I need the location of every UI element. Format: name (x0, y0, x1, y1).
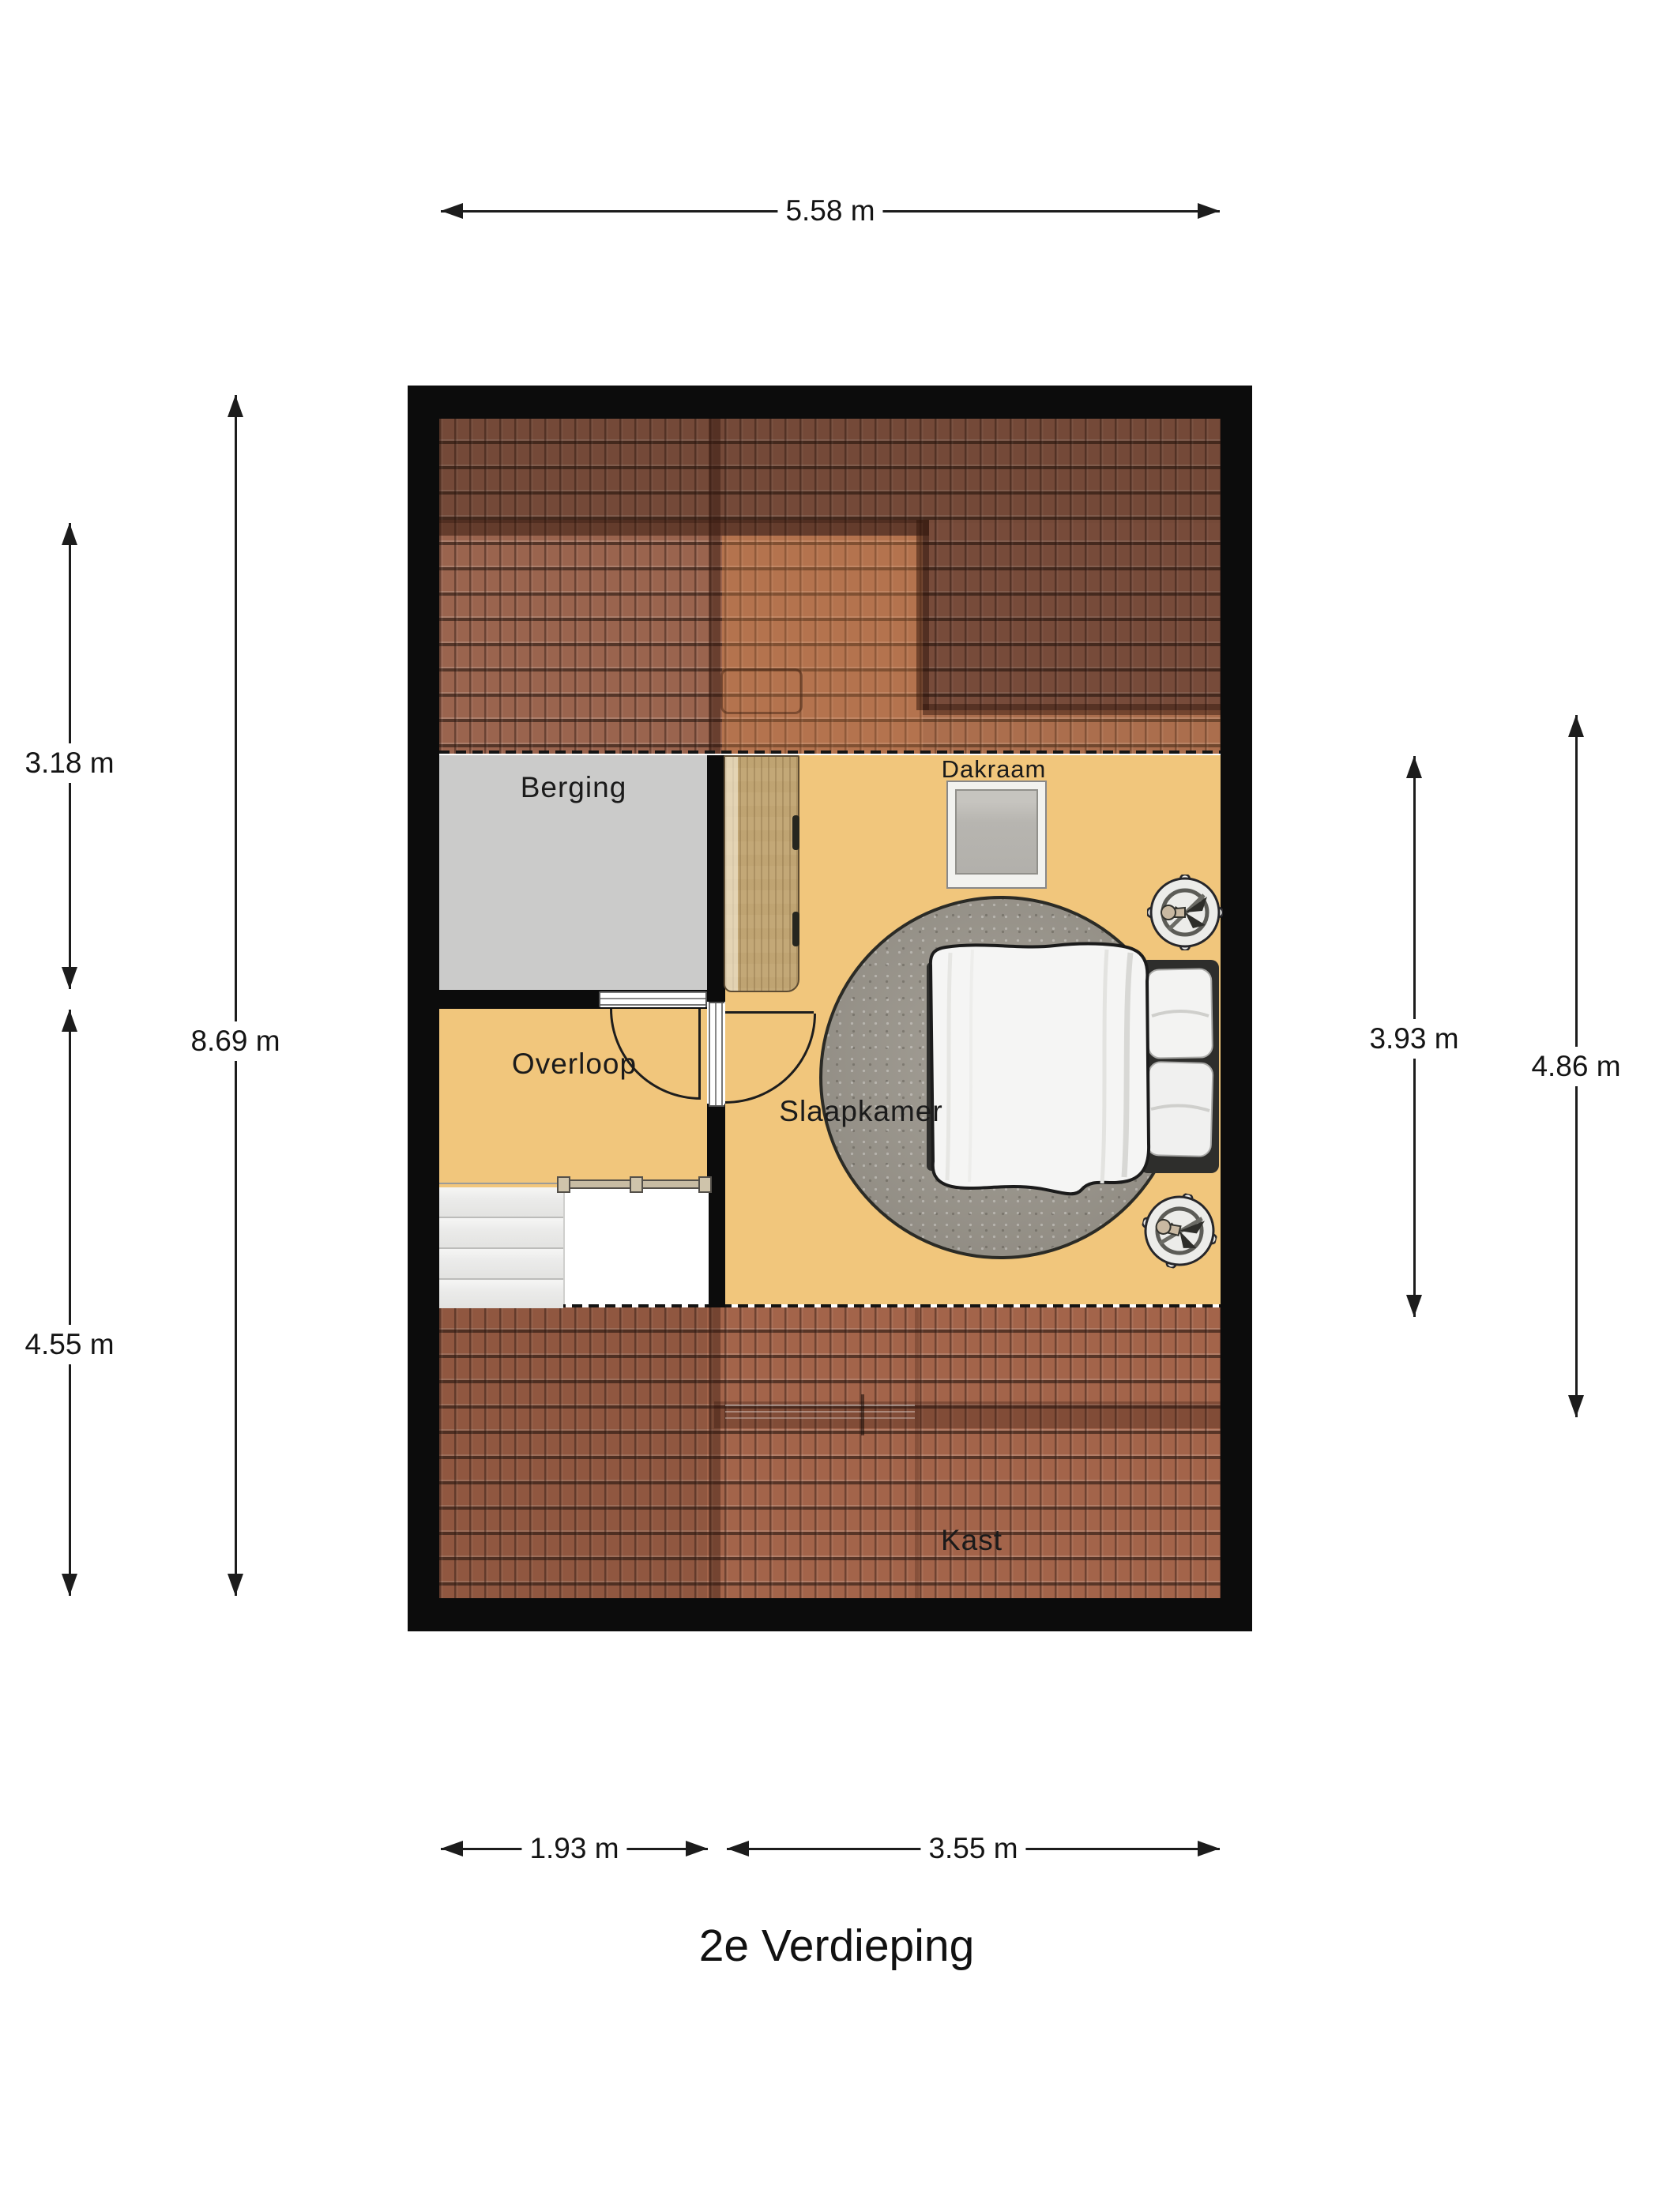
floorplan-page: 5.58 m 3.18 m 8.69 m 4.55 m 3.93 m 4.86 … (0, 0, 1659, 2212)
floor-title: 2e Verdieping (699, 1920, 975, 1972)
stair-tread (439, 1280, 563, 1308)
dimension-line (69, 1010, 71, 1596)
railing-post (698, 1176, 712, 1193)
feature-label-dakraam: Dakraam (942, 755, 1047, 784)
stair-tread (439, 1187, 563, 1218)
berging-door-frame (599, 991, 707, 1007)
wall-bottom (408, 1598, 1252, 1631)
dimension-left-upper: 3.18 m (58, 523, 81, 989)
stair-landing (563, 1187, 709, 1304)
roof-light-inner (722, 536, 923, 754)
railing-post (557, 1176, 570, 1193)
plant-icon (1147, 875, 1223, 950)
dimension-label: 1.93 m (521, 1829, 626, 1868)
roof-band-hatch (725, 1411, 915, 1413)
skylight-glass (955, 789, 1038, 875)
wall-top (408, 386, 1252, 419)
roof-band-hatch (725, 1405, 915, 1406)
wall-right (1221, 386, 1252, 1631)
arrowhead-down-icon (228, 1574, 243, 1596)
bed-duvet (931, 944, 1149, 1194)
arrowhead-left-icon (727, 1841, 749, 1856)
arrowhead-up-icon (1568, 715, 1584, 737)
room-label-kast: Kast (941, 1524, 1003, 1557)
railing-post (630, 1176, 643, 1193)
roof-light-right-strip (923, 710, 1221, 754)
dimension-label: 5.58 m (777, 191, 882, 231)
roof-step-edge-horizontal (439, 520, 929, 536)
roof-bottom (439, 1307, 1221, 1598)
wall-left (408, 386, 439, 1631)
dimension-label: 3.55 m (920, 1829, 1025, 1868)
dimension-bottom-right: 3.55 m (727, 1837, 1220, 1860)
dimension-label: 8.69 m (182, 1021, 288, 1061)
dimension-label: 4.55 m (17, 1325, 122, 1364)
wardrobe-handle (792, 815, 799, 850)
arrowhead-up-icon (62, 1010, 77, 1032)
roof-shade-upper (439, 419, 1221, 523)
arrowhead-down-icon (62, 967, 77, 989)
dimension-bottom-left: 1.93 m (441, 1837, 708, 1860)
dimension-left-total: 8.69 m (224, 395, 247, 1596)
eaves-dashed-line-top (439, 750, 1221, 754)
roof-band-tick (861, 1394, 864, 1435)
roof-seam-line (915, 1307, 919, 1598)
stair-tread (439, 1249, 563, 1280)
arrowhead-up-icon (228, 395, 243, 417)
arrowhead-up-icon (1406, 756, 1422, 778)
skylight-dakraam (946, 781, 1047, 889)
dimension-right-room: 3.93 m (1402, 756, 1426, 1317)
dimension-top-width: 5.58 m (441, 199, 1220, 223)
room-label-slaapkamer: Slaapkamer (779, 1095, 942, 1128)
roof-shade-right (923, 523, 1221, 710)
slaapkamer-door-frame (709, 1002, 724, 1107)
room-label-berging: Berging (521, 771, 627, 804)
dimension-line (235, 395, 237, 1596)
dimension-label: 3.93 m (1361, 1019, 1466, 1059)
arrowhead-down-icon (62, 1574, 77, 1596)
roof-step-edge-lower (923, 704, 1221, 715)
double-bed (927, 940, 1222, 1197)
roof-step-edge-vertical (916, 520, 929, 710)
arrowhead-down-icon (1406, 1295, 1422, 1317)
dimension-label: 3.18 m (17, 743, 122, 783)
arrowhead-left-icon (441, 1841, 463, 1856)
roof-window-outline (720, 668, 803, 714)
room-label-overloop: Overloop (512, 1048, 637, 1081)
dimension-label: 4.86 m (1523, 1047, 1628, 1086)
arrowhead-down-icon (1568, 1395, 1584, 1417)
roof-ridge-line (709, 419, 720, 754)
dimension-right-total: 4.86 m (1564, 715, 1588, 1417)
dimension-left-lower: 4.55 m (58, 1010, 81, 1596)
arrowhead-up-icon (62, 523, 77, 545)
wall-slaapkamer-upper (707, 755, 725, 1002)
wardrobe (724, 755, 799, 992)
wardrobe-handle (792, 912, 799, 946)
stair-tread (439, 1218, 563, 1249)
arrowhead-left-icon (441, 203, 463, 219)
wall-slaapkamer-lower (707, 1104, 725, 1307)
staircase (439, 1187, 563, 1304)
arrowhead-right-icon (1198, 1841, 1220, 1856)
arrowhead-right-icon (1198, 203, 1220, 219)
roof-top (439, 419, 1221, 754)
roof-band-hatch (725, 1417, 915, 1419)
arrowhead-right-icon (686, 1841, 708, 1856)
roof-shade-left (439, 1307, 707, 1598)
roof-ridge-line (709, 1307, 720, 1598)
